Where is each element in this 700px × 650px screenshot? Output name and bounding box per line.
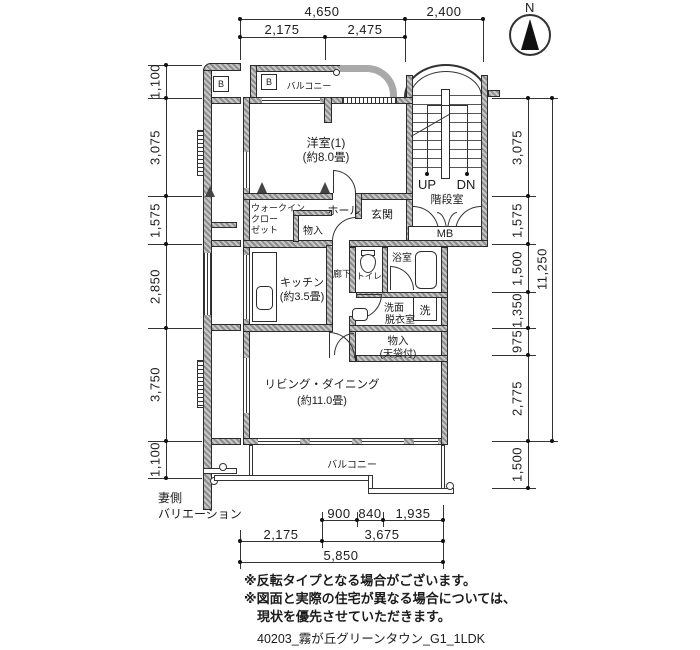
dim-dot	[526, 194, 530, 198]
side-strip-stub	[211, 97, 241, 104]
dim-top-2175: 2,175	[242, 22, 322, 37]
balcony-drain-icon	[219, 463, 227, 471]
dim-dot	[164, 439, 168, 443]
room-label-kitchen-size: (約3.5畳)	[262, 288, 342, 304]
wall-washroom-closet	[349, 325, 448, 332]
stair-up-label: UP	[413, 177, 441, 192]
window	[342, 97, 397, 104]
dim-tick	[483, 19, 484, 62]
stair-path-dot	[465, 172, 469, 176]
dim-line	[240, 19, 483, 20]
stair-path-dot	[425, 172, 429, 176]
balcony-drain-icon	[333, 69, 340, 76]
bedroom-door-leaf	[333, 170, 334, 193]
wic-door-pivot-icon	[320, 182, 330, 193]
dim-dot	[403, 17, 407, 21]
dim-top-2400: 2,400	[404, 4, 484, 19]
wall-bedroom-bottom	[243, 193, 333, 200]
side-annotation-1: 妻側	[158, 489, 182, 506]
dim-line	[240, 562, 443, 563]
dim-dot	[238, 17, 242, 21]
dim-dot	[355, 518, 359, 522]
dim-line	[552, 98, 553, 441]
balcony-b-marker-box: B	[261, 74, 277, 90]
wall-right-lower	[441, 247, 448, 445]
window	[258, 438, 300, 445]
room-label-balcony-top: バルコニー	[281, 79, 337, 92]
entrance-hall-door-arc	[332, 217, 356, 241]
window	[243, 255, 250, 319]
dim-bottom-2175: 2,175	[246, 527, 316, 542]
balcony-drain-icon	[446, 482, 454, 490]
floor-plan-sheet: N 4,650 2,400 2,175 2,475 1,100 3,075 1,…	[0, 0, 700, 650]
dim-left-1575: 1,575	[147, 185, 163, 255]
room-label-bedroom-size: (約8.0畳)	[266, 149, 386, 165]
dim-dot	[164, 242, 168, 246]
dim-top-2475: 2,475	[325, 22, 405, 37]
dim-dot	[323, 35, 327, 39]
dim-line	[240, 541, 443, 542]
dim-dot	[164, 326, 168, 330]
room-label-toilet: トイレ	[355, 270, 383, 282]
dim-tick	[492, 441, 558, 442]
dim-left-3075: 3,075	[147, 112, 163, 182]
balcony-rail	[214, 475, 372, 481]
stair-stringer	[441, 89, 450, 179]
wall-stub	[324, 97, 332, 123]
dim-dot	[238, 539, 242, 543]
dim-dot	[441, 518, 445, 522]
dim-dot	[238, 560, 242, 564]
room-label-closet-hall: 物入	[298, 222, 328, 237]
dim-dot	[526, 96, 530, 100]
side-b-marker-box: B	[213, 76, 229, 92]
dim-dot	[526, 290, 530, 294]
meter-box-label: MB	[409, 228, 481, 240]
dim-dot	[526, 326, 530, 330]
room-label-washroom-2: 脱衣室	[380, 311, 420, 326]
dim-bottom-3675: 3,675	[347, 527, 417, 542]
top-balcony-rail	[250, 65, 257, 98]
side-strip-stub	[211, 222, 237, 228]
dim-dot	[526, 439, 530, 443]
room-label-closet-living-2: (天袋付)	[368, 345, 428, 360]
dim-dot	[381, 518, 385, 522]
dim-dot	[164, 476, 168, 480]
side-door-pivot-icon	[205, 186, 215, 197]
window	[362, 438, 404, 445]
washroom-door-leaf	[357, 294, 382, 295]
room-label-living-size: (約11.0畳)	[252, 392, 392, 408]
wall-kitchen-bottom	[243, 324, 333, 332]
washbasin	[352, 308, 368, 321]
dim-line	[166, 65, 167, 478]
room-label-wic-3: ゼット	[251, 223, 301, 236]
side-window	[204, 253, 211, 315]
stairwell-right-wall	[481, 75, 488, 247]
wall-kitchen-top	[243, 240, 333, 248]
note-line-1: ※反転タイプとなる場合がございます。	[244, 570, 476, 589]
room-label-living: リビング・ダイニング	[252, 376, 392, 392]
dim-dot	[238, 35, 242, 39]
balcony-rail	[368, 488, 454, 494]
side-strip-stub	[211, 324, 241, 331]
top-balcony-rail	[250, 65, 346, 72]
dim-tick	[405, 19, 406, 62]
bath-door-arc	[390, 266, 414, 290]
dim-tick	[148, 328, 202, 329]
bedroom-door-arc	[333, 170, 356, 193]
dim-dot	[526, 486, 530, 490]
room-label-stair: 階段室	[419, 191, 475, 207]
dim-dot	[403, 35, 407, 39]
dim-dot	[526, 242, 530, 246]
dim-dot	[550, 439, 554, 443]
dim-tick	[240, 19, 241, 60]
dim-bottom-5850: 5,850	[306, 548, 376, 563]
compass-needle-icon	[521, 19, 539, 50]
dim-dot	[550, 96, 554, 100]
balcony-rail	[249, 445, 253, 477]
dim-right-2775: 2,775	[509, 363, 525, 433]
window	[414, 438, 438, 445]
room-label-bath: 浴室	[388, 249, 416, 264]
note-line-2: ※図面と実際の住宅が異なる場合については、	[244, 588, 516, 607]
living-door-leaf	[329, 332, 330, 358]
balcony-rail	[441, 445, 445, 490]
bathtub	[415, 251, 437, 289]
dim-right-1500b: 1,500	[509, 429, 525, 499]
dim-dot	[481, 17, 485, 21]
side-window	[197, 130, 204, 176]
room-label-hall: ホール	[324, 202, 364, 218]
side-strip-wall	[203, 63, 241, 71]
north-label: N	[504, 0, 556, 15]
dim-tick	[492, 98, 558, 99]
balcony-b-marker: B	[262, 77, 276, 87]
window	[243, 358, 250, 413]
dim-left-1100a: 1,100	[147, 46, 163, 116]
note-line-3: 現状を優先させていただきます。	[257, 606, 451, 625]
dim-left-2850: 2,850	[147, 251, 163, 321]
dim-dot	[320, 518, 324, 522]
side-annotation-2: バリエーション	[158, 505, 242, 522]
wic-door-pivot-icon	[257, 182, 267, 193]
wall-entrance-top	[355, 193, 413, 200]
stairwell-stub	[488, 90, 500, 97]
wall-mid-horizontal	[349, 240, 488, 247]
dim-dot	[164, 63, 168, 67]
dim-dot	[320, 539, 324, 543]
side-window	[197, 360, 204, 408]
stair-path-line	[427, 105, 428, 174]
dim-dot	[164, 194, 168, 198]
stair-dn-label: DN	[452, 177, 480, 192]
window	[310, 438, 352, 445]
window	[262, 97, 320, 104]
dim-dot	[441, 539, 445, 543]
window	[243, 152, 250, 188]
dim-left-3750: 3,750	[147, 349, 163, 419]
top-balcony-corner	[340, 65, 397, 98]
stair-path-line	[427, 105, 468, 106]
dim-tick	[325, 37, 326, 60]
bath-door-leaf	[390, 266, 391, 290]
side-b-marker: B	[214, 79, 228, 89]
dim-dot	[526, 353, 530, 357]
stair-path-line	[467, 105, 468, 174]
dim-dot	[164, 96, 168, 100]
side-strip-stub	[211, 240, 241, 247]
dim-right-11250: 11,250	[534, 234, 550, 304]
dim-right-3075: 3,075	[509, 112, 525, 182]
plan-caption: 40203_霧が丘グリーンタウン_G1_1LDK	[257, 628, 485, 647]
dim-left-1100b: 1,100	[147, 424, 163, 494]
dim-bottom-1935: 1,935	[383, 506, 443, 521]
side-strip-stub	[211, 438, 241, 445]
room-label-balcony-bottom: バルコニー	[322, 456, 382, 471]
room-label-entrance: 玄関	[364, 206, 400, 222]
dim-dot	[441, 560, 445, 564]
dim-top-4650: 4,650	[282, 4, 362, 19]
